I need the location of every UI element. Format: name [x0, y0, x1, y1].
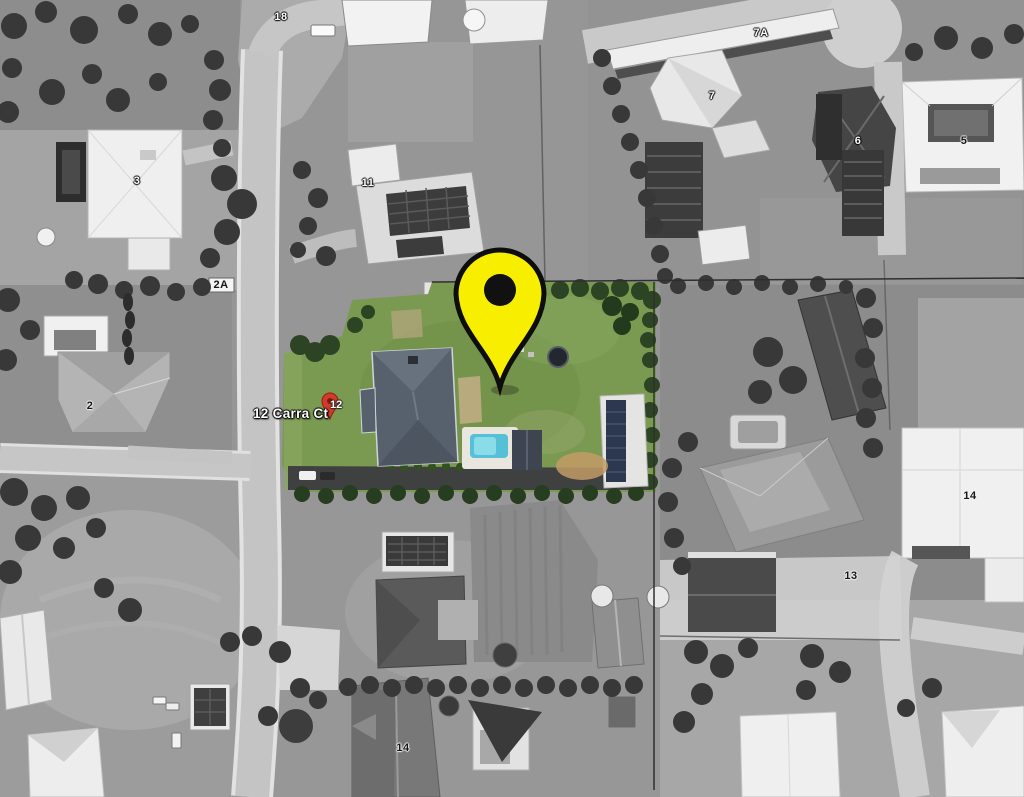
swimming-pool-area — [462, 427, 542, 470]
sand-patch — [556, 452, 608, 480]
building-top-center — [342, 0, 432, 46]
aerial-imagery — [0, 0, 1024, 797]
house-5 — [902, 78, 1024, 192]
silo-tank-2 — [647, 586, 669, 608]
silo-tank — [591, 585, 613, 607]
road-carra-ct — [252, 50, 262, 797]
shed-bottom — [608, 696, 636, 728]
spa-trampoline — [548, 347, 568, 367]
sign-2a — [209, 278, 234, 292]
truck — [311, 25, 335, 36]
satellite-map[interactable]: 12 Carra Ct 12 1832A2117A765141314 — [0, 0, 1024, 797]
pin-hole — [484, 274, 516, 306]
water-tank — [37, 228, 55, 246]
pin-shadow — [491, 385, 519, 395]
solar-shed — [600, 394, 648, 488]
shed-solar-bottom-left — [190, 684, 230, 730]
house-dark-bottom-right — [688, 552, 776, 632]
parked-car-dark — [320, 472, 335, 480]
parked-car-white — [299, 471, 316, 480]
